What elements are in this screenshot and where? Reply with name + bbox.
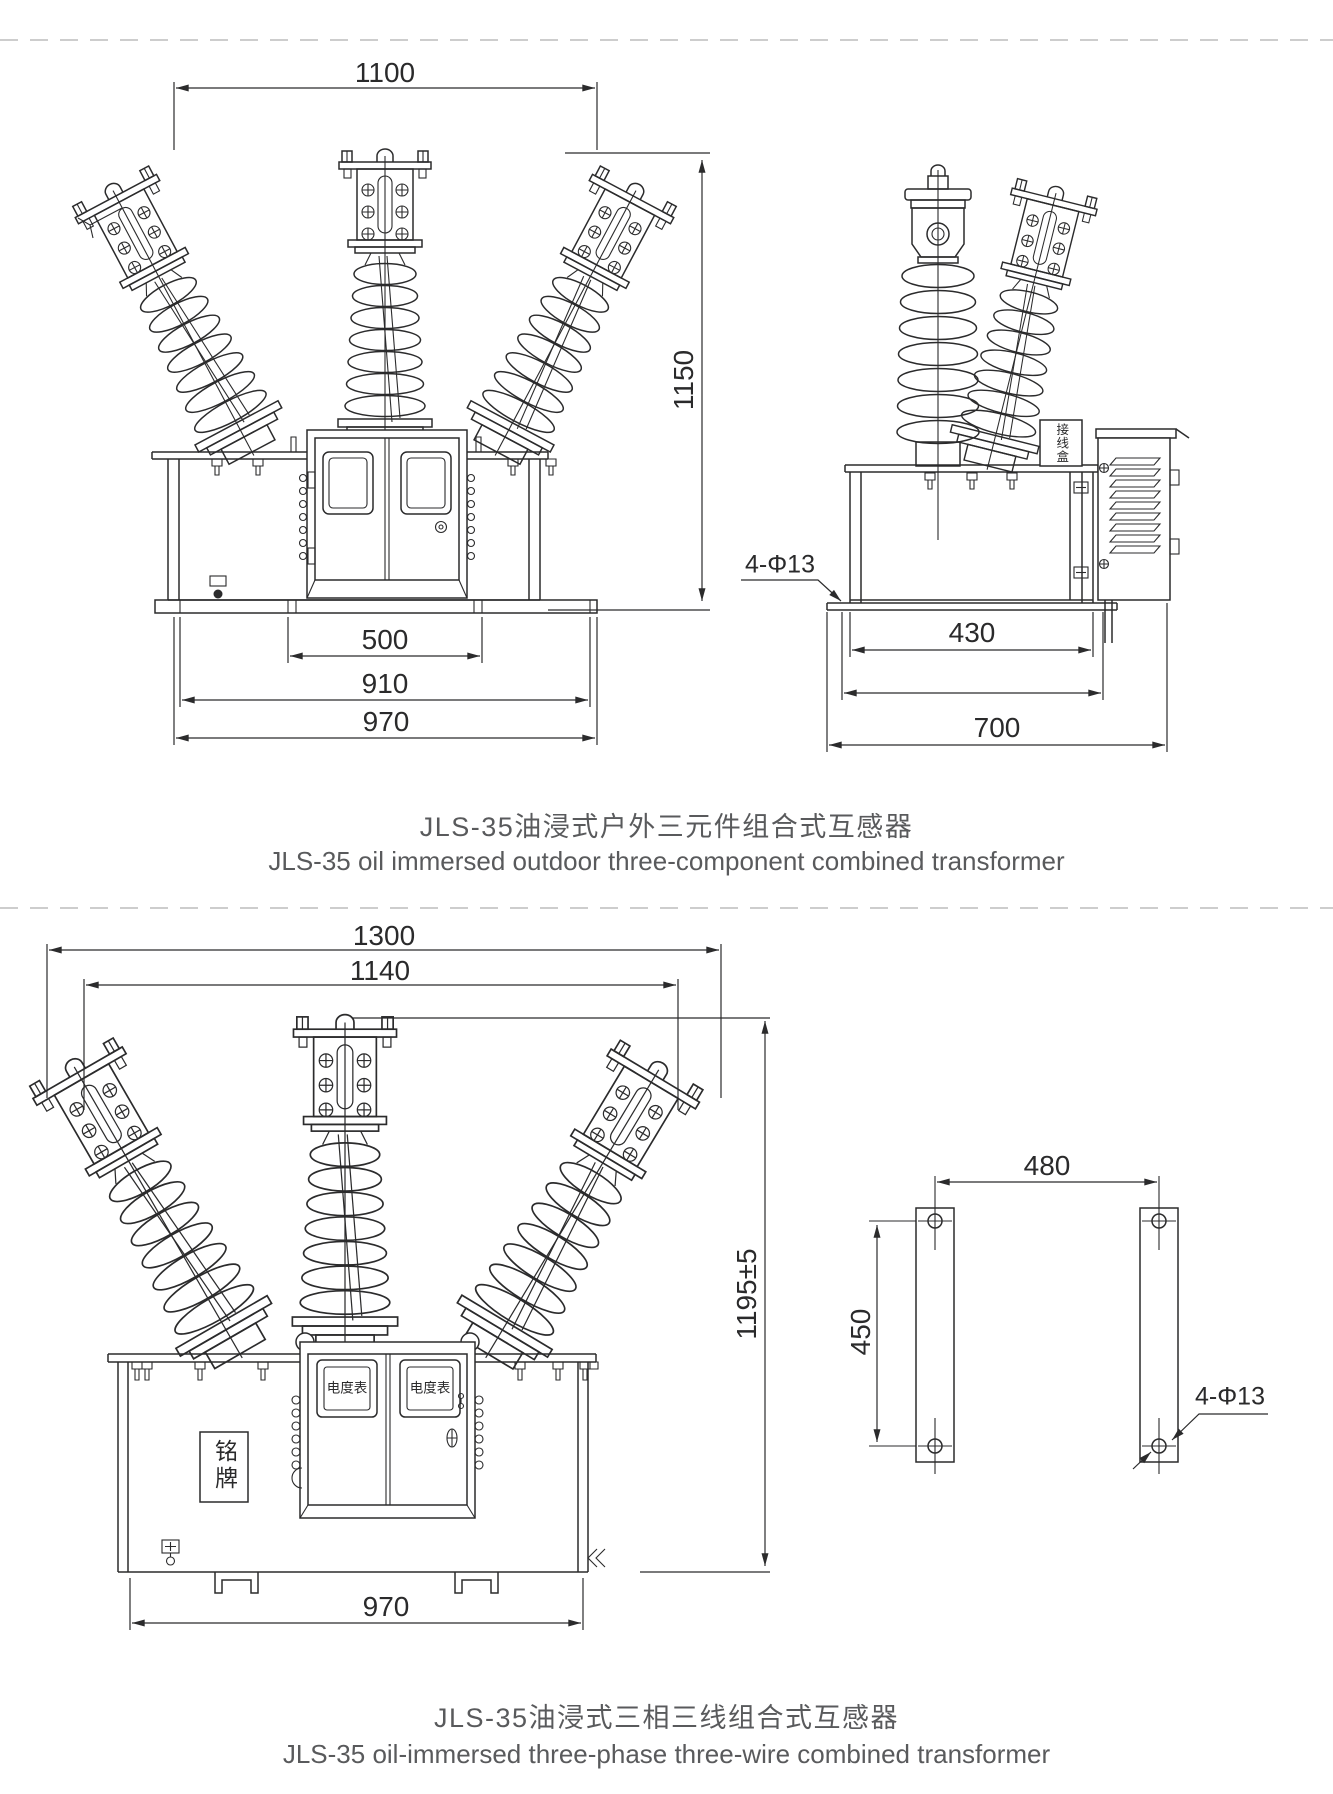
transformer-outline-drawing-page: 1100 1150 500 910 970 430 700 4-Φ13 接线盒 …	[0, 0, 1333, 1794]
dim-1140: 1140	[350, 957, 410, 985]
dim-910: 910	[362, 670, 409, 698]
meter-label-right: 电度表	[410, 1381, 451, 1395]
hole-note-top: 4-Φ13	[745, 553, 815, 578]
figure2-title-zh: JLS-35油浸式三相三线组合式互感器	[0, 1703, 1333, 1734]
oil-gauge	[210, 576, 226, 586]
bushing-left	[25, 1034, 288, 1384]
bushing-vertical-side	[897, 165, 979, 540]
bushing-right	[441, 1036, 708, 1385]
figure2-front-view	[25, 1015, 708, 1593]
drain-dot	[214, 590, 223, 599]
leader-4phi13-bottom	[1172, 1414, 1268, 1440]
secondary-cabinet	[307, 430, 467, 598]
leader-4phi13-top	[741, 580, 841, 601]
bushing-center	[338, 149, 432, 456]
dim-970b: 970	[363, 1593, 410, 1621]
dim-970: 970	[363, 708, 410, 736]
hole-note-bottom: 4-Φ13	[1195, 1385, 1265, 1410]
dim-700: 700	[974, 714, 1021, 742]
figure2-title-en: JLS-35 oil-immersed three-phase three-wi…	[0, 1740, 1333, 1770]
dim-1150: 1150	[670, 350, 698, 410]
figure1-front-view	[68, 149, 680, 613]
chevron-mark	[588, 1549, 605, 1567]
bushing-center	[292, 1015, 397, 1359]
grounding-terminal	[162, 1540, 179, 1565]
bushing-left	[68, 162, 295, 477]
dim-1195: 1195±5	[733, 1248, 761, 1339]
figure1-title-zh: JLS-35油浸式户外三元件组合式互感器	[0, 812, 1333, 843]
leader-4phi13-bottom2	[1133, 1452, 1151, 1469]
junction-box-label: 接线盒	[1055, 423, 1068, 464]
dim-480: 480	[1024, 1152, 1071, 1180]
nameplate-label: 铭牌	[213, 1439, 236, 1493]
figure2-mount-plates	[869, 1176, 1268, 1474]
figure2-front-dimensions	[47, 944, 770, 1630]
dim-1300: 1300	[353, 922, 415, 950]
figure1-side-view	[827, 165, 1189, 643]
meter-cabinet	[292, 1333, 479, 1518]
figure1-side-dimensions	[741, 580, 1167, 752]
louver-cabinet	[1096, 429, 1189, 643]
dim-1100: 1100	[355, 59, 415, 87]
line-art	[0, 0, 1333, 1794]
dim-500: 500	[362, 626, 409, 654]
figure1-title-en: JLS-35 oil immersed outdoor three-compon…	[0, 847, 1333, 877]
dim-450: 450	[847, 1309, 875, 1356]
dim-430: 430	[949, 619, 996, 647]
bushing-right	[454, 162, 681, 477]
meter-label-left: 电度表	[327, 1381, 368, 1395]
